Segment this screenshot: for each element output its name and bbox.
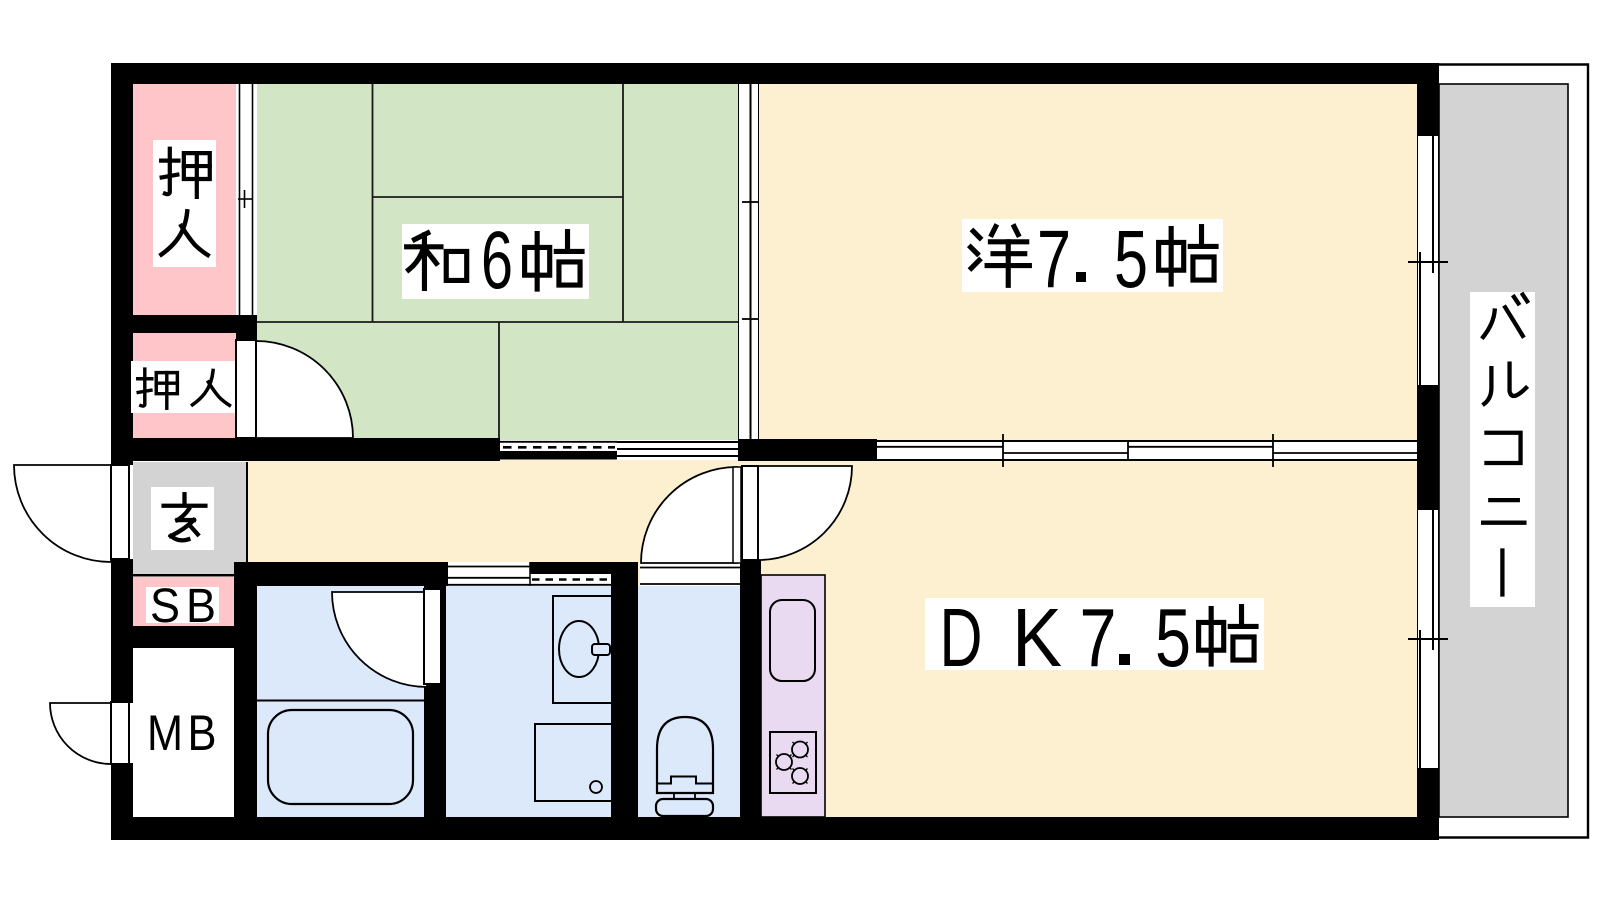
svg-text:S: S (150, 580, 180, 633)
svg-text:7: 7 (1080, 591, 1117, 684)
svg-text:7: 7 (1037, 214, 1071, 305)
svg-text:M: M (147, 705, 183, 761)
svg-text:B: B (186, 580, 216, 633)
svg-text:D: D (940, 591, 983, 684)
svg-text:K: K (1012, 591, 1062, 684)
svg-text:6: 6 (481, 215, 513, 306)
svg-text:B: B (188, 705, 217, 761)
svg-text:5: 5 (1155, 591, 1191, 684)
svg-text:5: 5 (1114, 214, 1148, 305)
